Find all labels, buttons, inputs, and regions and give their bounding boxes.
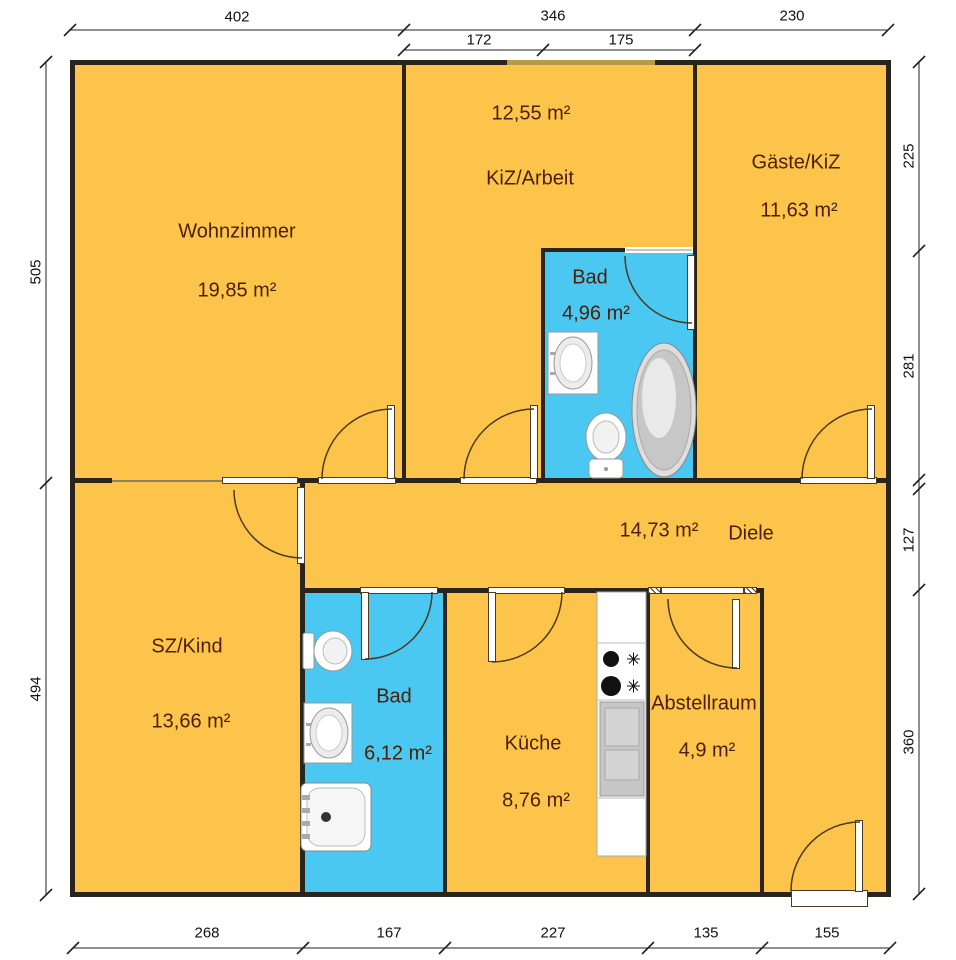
- room-label-diele: Diele: [728, 523, 774, 546]
- door-arc-bad-lower: [365, 592, 432, 659]
- dim-left-494: 494: [28, 676, 45, 701]
- door-arc-entrance: [791, 822, 860, 891]
- door-arc-wohnzimmer: [322, 409, 392, 479]
- dim-right-127: 127: [901, 527, 918, 552]
- room-area-bad-lower: 6,12 m²: [364, 743, 432, 766]
- room-area-kueche: 8,76 m²: [502, 790, 570, 813]
- dim-top-175: 175: [608, 32, 633, 49]
- room-area-gaeste: 11,63 m²: [760, 200, 837, 223]
- room-area-bad-upper: 4,96 m²: [562, 303, 630, 326]
- room-label-kueche: Küche: [505, 733, 562, 756]
- bathtub-icon-bad-lower: [301, 783, 371, 851]
- room-label-bad-lower: Bad: [376, 686, 412, 709]
- door-arc-abstellraum: [668, 599, 737, 668]
- floor-plan: Wohnzimmer 19,85 m² 12,55 m² KiZ/Arbeit …: [0, 0, 956, 960]
- door-arc-bad-upper: [625, 256, 692, 323]
- toilet-icon-bad-lower: [303, 631, 352, 671]
- room-label-sz: SZ/Kind: [151, 636, 222, 659]
- plan-graphics: [0, 0, 956, 960]
- dim-bottom-155: 155: [814, 925, 839, 942]
- room-area-diele: 14,73 m²: [620, 520, 699, 543]
- room-area-sz: 13,66 m²: [152, 711, 231, 734]
- room-area-kiz: 12,55 m²: [492, 103, 571, 126]
- door-arc-kueche: [492, 592, 562, 662]
- door-arc-kiz: [464, 409, 534, 479]
- sink-icon-bad-upper: [548, 332, 598, 394]
- dim-bottom-227: 227: [540, 925, 565, 942]
- room-label-wohnzimmer: Wohnzimmer: [178, 221, 295, 244]
- room-area-abstellraum: 4,9 m²: [679, 740, 736, 763]
- room-label-kiz: KiZ/Arbeit: [486, 168, 574, 191]
- room-label-gaeste: Gäste/KiZ: [752, 152, 841, 175]
- door-arc-sz: [234, 490, 302, 558]
- dim-top-346: 346: [540, 8, 565, 25]
- toilet-icon-bad-upper: [586, 413, 626, 478]
- room-label-abstellraum: Abstellraum: [651, 693, 757, 716]
- dim-top-402: 402: [224, 9, 249, 26]
- dim-right-360: 360: [901, 729, 918, 754]
- sink-icon-bad-lower: [304, 703, 352, 763]
- dim-right-281: 281: [901, 353, 918, 378]
- room-label-bad-upper: Bad: [572, 267, 608, 290]
- dim-top-230: 230: [779, 8, 804, 25]
- dim-bottom-268: 268: [194, 925, 219, 942]
- dim-right-225: 225: [901, 143, 918, 168]
- bathtub-icon-bad-upper: [632, 343, 696, 477]
- dim-bottom-135: 135: [693, 925, 718, 942]
- dim-left-505: 505: [28, 259, 45, 284]
- dim-top-172: 172: [466, 32, 491, 49]
- door-arc-gaeste: [802, 409, 872, 479]
- dim-bottom-167: 167: [376, 925, 401, 942]
- room-area-wohnzimmer: 19,85 m²: [198, 280, 277, 303]
- kitchen-sink-unit: [600, 702, 644, 796]
